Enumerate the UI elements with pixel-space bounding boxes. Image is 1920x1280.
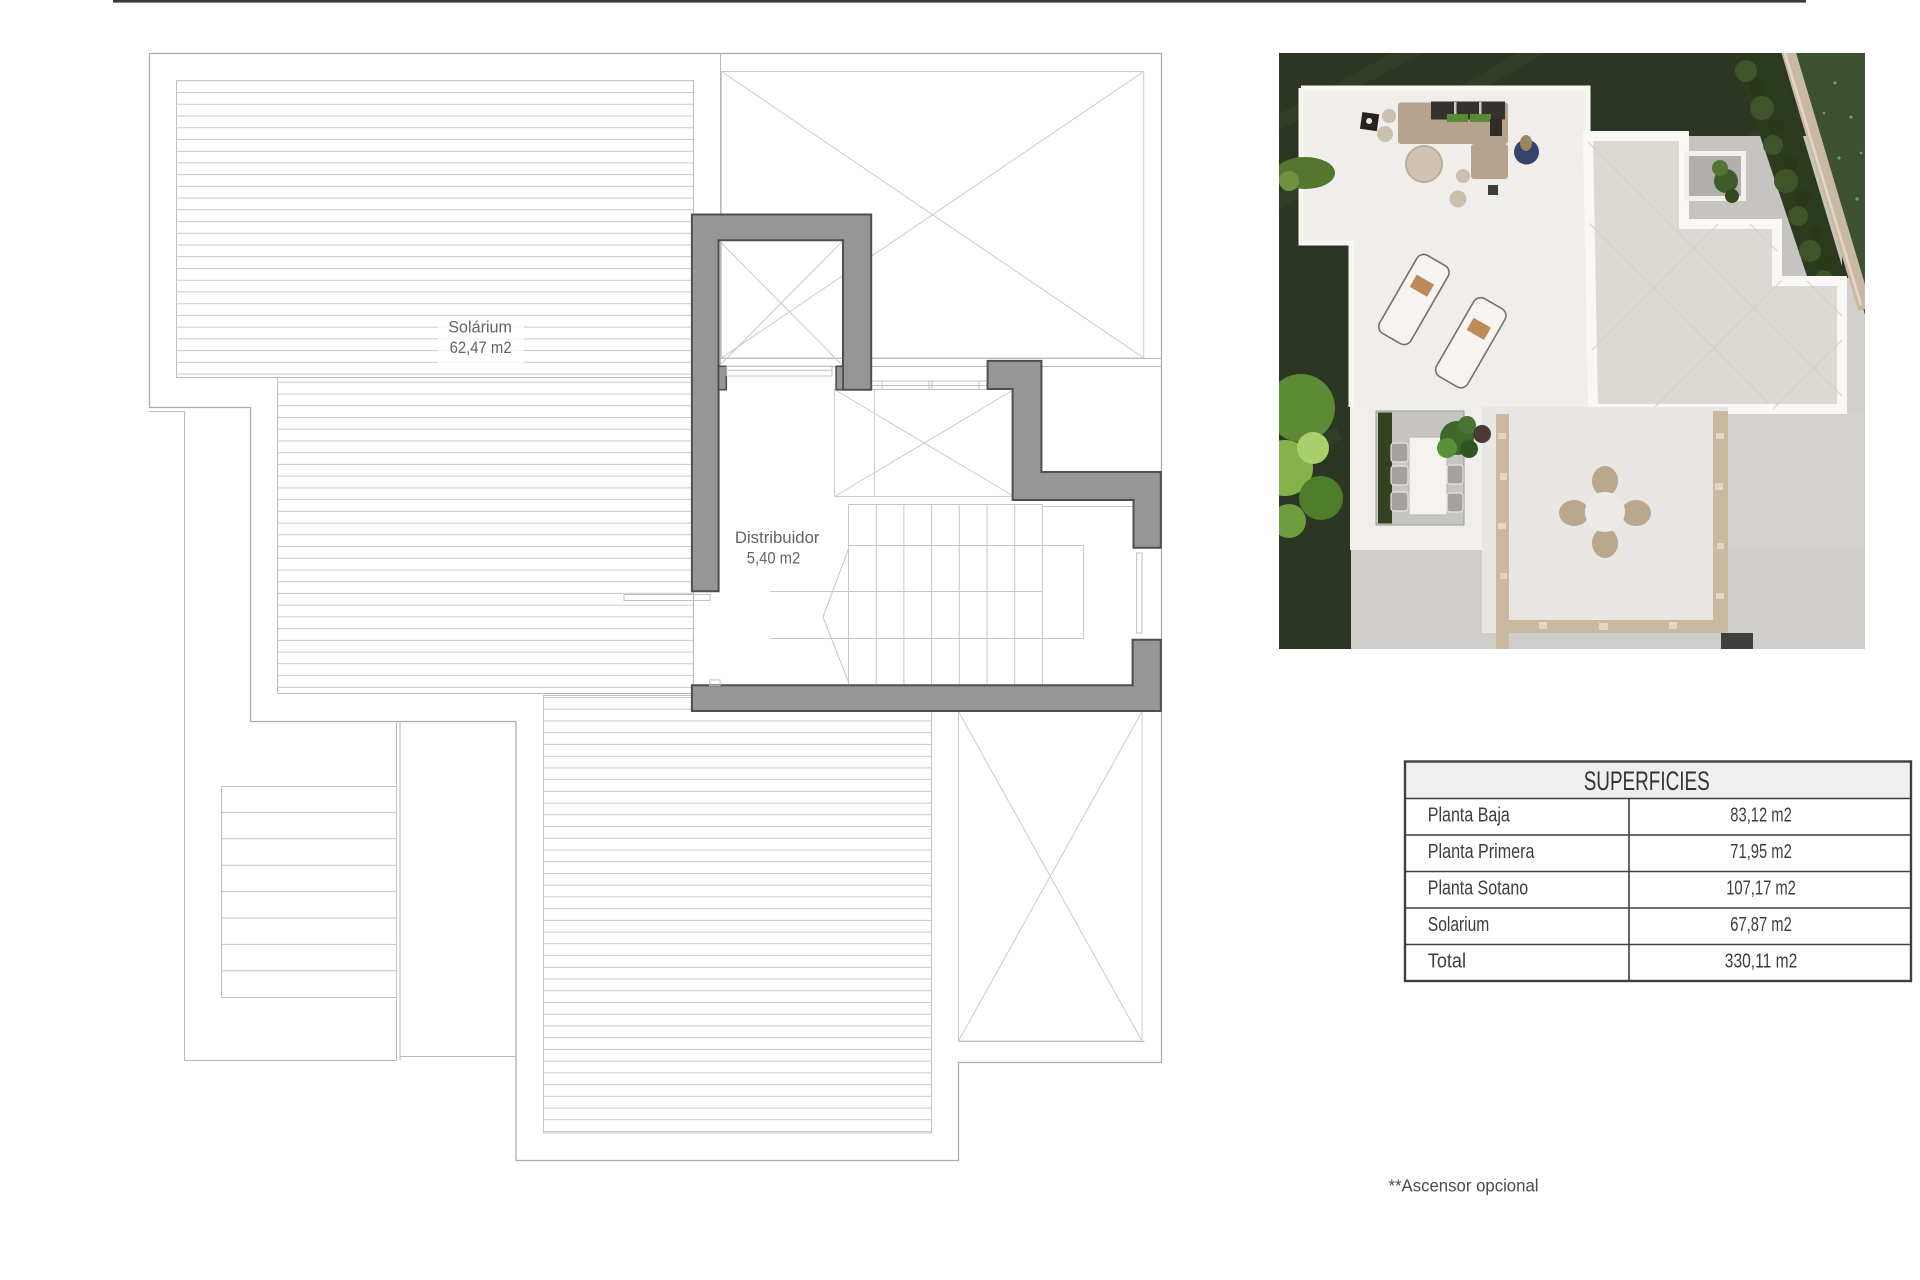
svg-text:83,12 m2: 83,12 m2 xyxy=(1730,805,1792,827)
svg-text:Solarium: Solarium xyxy=(1428,914,1490,936)
svg-text:SUPERFICIES: SUPERFICIES xyxy=(1584,766,1710,796)
svg-text:Total: Total xyxy=(1428,951,1466,973)
svg-text:62,47 m2: 62,47 m2 xyxy=(450,338,512,357)
svg-text:71,95 m2: 71,95 m2 xyxy=(1730,841,1792,863)
svg-text:Planta Sotano: Planta Sotano xyxy=(1428,878,1528,900)
svg-text:107,17 m2: 107,17 m2 xyxy=(1726,878,1796,900)
svg-text:Distribuidor: Distribuidor xyxy=(735,528,820,547)
svg-text:Planta Baja: Planta Baja xyxy=(1428,805,1511,827)
svg-text:Solárium: Solárium xyxy=(448,318,512,337)
svg-text:Planta Primera: Planta Primera xyxy=(1428,841,1535,863)
svg-text:67,87 m2: 67,87 m2 xyxy=(1730,914,1792,936)
svg-text:**Ascensor opcional: **Ascensor opcional xyxy=(1389,1176,1539,1196)
svg-text:330,11 m2: 330,11 m2 xyxy=(1725,951,1798,973)
svg-text:5,40 m2: 5,40 m2 xyxy=(747,549,800,568)
